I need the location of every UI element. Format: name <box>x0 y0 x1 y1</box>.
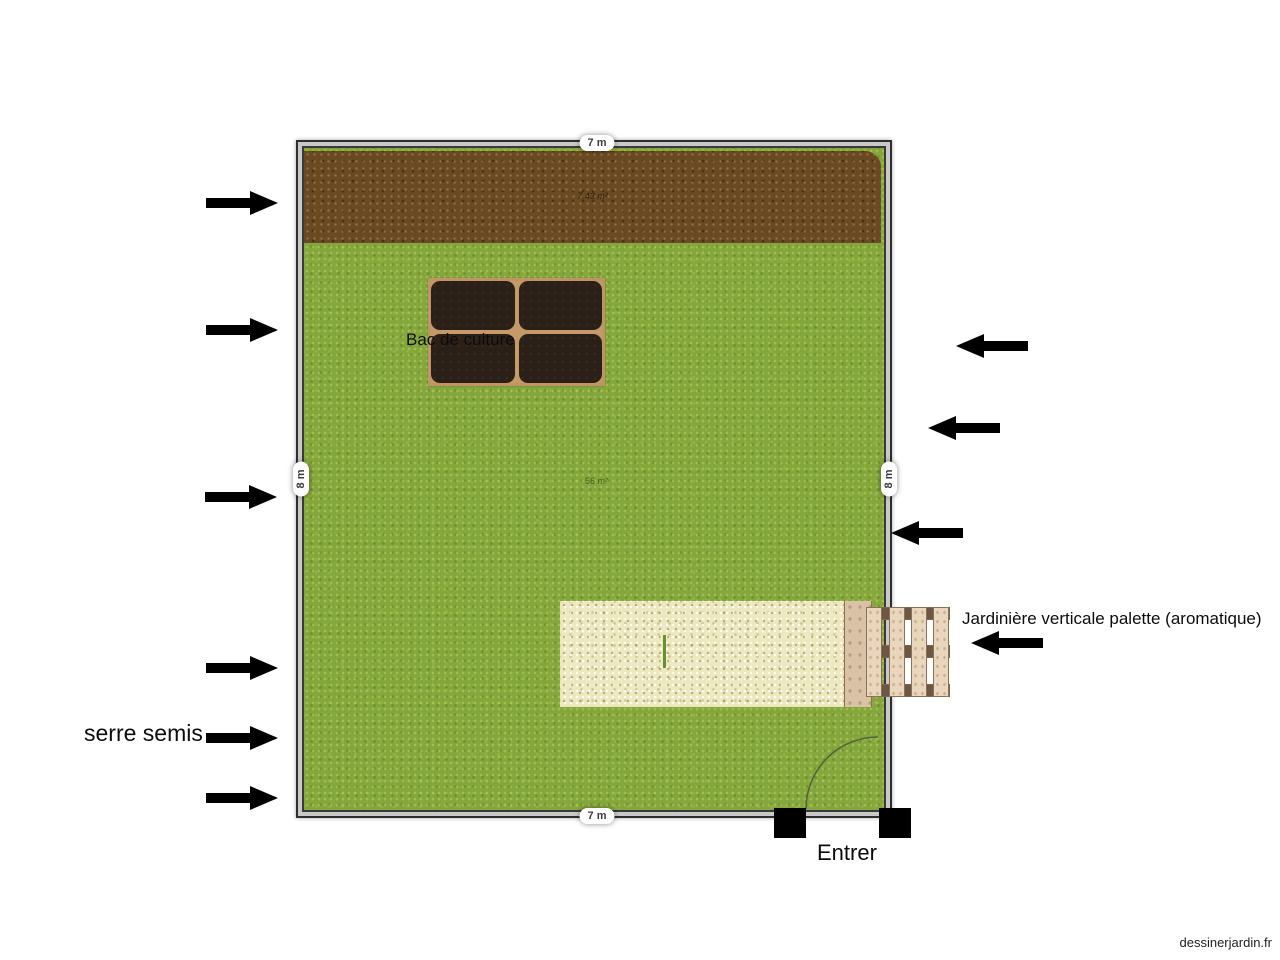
dimension-bottom: 7 m <box>580 808 615 824</box>
pallet-slat <box>933 607 949 697</box>
entrance-label[interactable]: Entrer <box>817 840 877 866</box>
arrow-tail <box>956 423 1000 433</box>
pallet-slat <box>911 607 927 697</box>
dimension-right: 8 m <box>881 462 897 497</box>
planter-box[interactable] <box>519 281 603 330</box>
door-post[interactable] <box>879 808 911 838</box>
jardiniere-label[interactable]: Jardinière verticale palette (aromatique… <box>962 609 1262 629</box>
arrow-head <box>891 521 919 545</box>
arrow-head <box>250 786 278 810</box>
plant-sprout-icon <box>663 635 666 668</box>
arrow-right-icon[interactable] <box>206 656 278 680</box>
dimension-left: 8 m <box>293 462 309 497</box>
arrow-head <box>250 191 278 215</box>
soil-bed[interactable]: 7.43 m² <box>304 151 881 243</box>
lawn-area-label: 56 m² <box>585 476 608 486</box>
arrow-head <box>928 416 956 440</box>
arrow-right-icon[interactable] <box>206 726 278 750</box>
arrow-head <box>250 318 278 342</box>
arrow-head <box>971 631 999 655</box>
site-watermark: dessinerjardin.fr <box>1180 935 1273 950</box>
pallet-slat <box>889 607 905 697</box>
gravel-bed[interactable] <box>560 601 872 707</box>
arrow-tail <box>206 198 250 208</box>
door-post[interactable] <box>774 808 806 838</box>
arrow-left-icon[interactable] <box>891 521 963 545</box>
arrow-left-icon[interactable] <box>928 416 1000 440</box>
arrow-right-icon[interactable] <box>206 786 278 810</box>
bac-de-culture-label[interactable]: Bac de culture <box>406 330 515 350</box>
lawn: 7.43 m² 56 m² Bac de culture <box>302 146 886 812</box>
serre-semis-label[interactable]: serre semis <box>84 720 203 747</box>
arrow-right-icon[interactable] <box>205 485 277 509</box>
garden-plan-canvas: 7.43 m² 56 m² Bac de culture <box>0 0 1280 960</box>
arrow-left-icon[interactable] <box>971 631 1043 655</box>
planter-box[interactable] <box>431 281 515 330</box>
arrow-right-icon[interactable] <box>206 191 278 215</box>
planter-box[interactable] <box>519 334 603 383</box>
arrow-head <box>249 485 277 509</box>
arrow-right-icon[interactable] <box>206 318 278 342</box>
soil-bed-area-label: 7.43 m² <box>577 191 608 201</box>
arrow-tail <box>984 341 1028 351</box>
pallet-slat <box>866 607 882 697</box>
arrow-head <box>956 334 984 358</box>
arrow-tail <box>206 733 250 743</box>
garden-wall: 7.43 m² 56 m² Bac de culture <box>296 140 892 818</box>
arrow-tail <box>206 325 250 335</box>
arrow-head <box>250 656 278 680</box>
arrow-tail <box>206 793 250 803</box>
arrow-tail <box>999 638 1043 648</box>
dimension-top: 7 m <box>580 135 615 151</box>
arrow-head <box>250 726 278 750</box>
pallet-jardiniere[interactable] <box>866 607 950 697</box>
arrow-left-icon[interactable] <box>956 334 1028 358</box>
arrow-tail <box>205 492 249 502</box>
arrow-tail <box>919 528 963 538</box>
arrow-tail <box>206 663 250 673</box>
